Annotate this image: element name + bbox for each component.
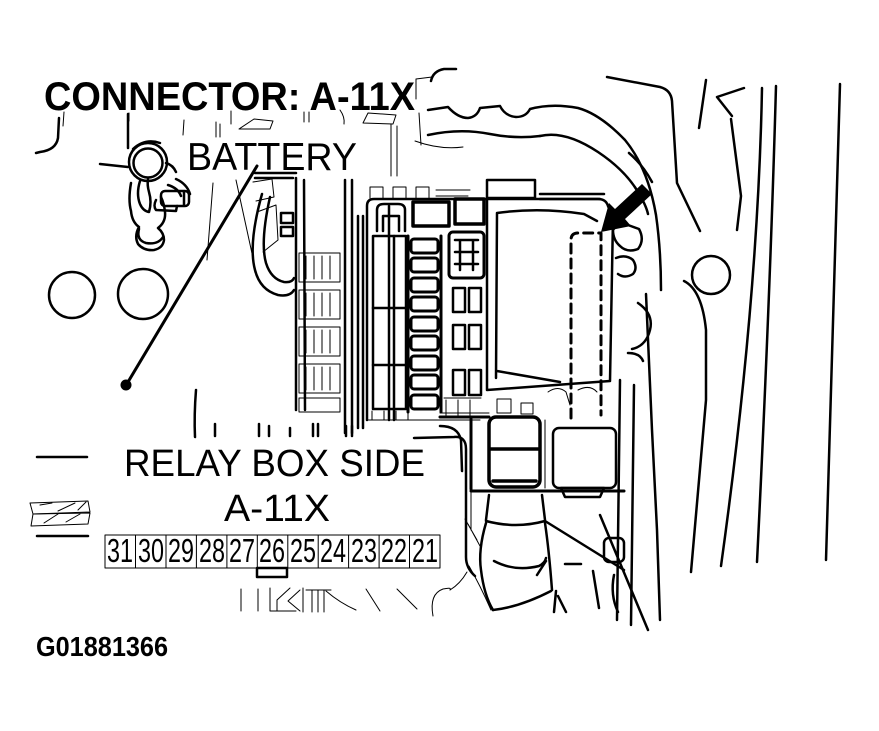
- svg-text:22: 22: [381, 532, 407, 569]
- svg-text:26: 26: [259, 532, 285, 569]
- svg-text:28: 28: [199, 532, 225, 569]
- svg-text:G01881366: G01881366: [36, 631, 168, 662]
- svg-text:27: 27: [229, 532, 255, 569]
- svg-text:30: 30: [138, 532, 164, 569]
- svg-text:21: 21: [412, 532, 438, 569]
- svg-text:25: 25: [290, 532, 316, 569]
- svg-text:CONNECTOR: A-11X: CONNECTOR: A-11X: [44, 75, 415, 119]
- svg-text:24: 24: [320, 532, 346, 569]
- svg-text:31: 31: [107, 532, 133, 569]
- svg-text:29: 29: [168, 532, 194, 569]
- svg-text:RELAY BOX SIDE: RELAY BOX SIDE: [124, 443, 425, 485]
- svg-text:A-11X: A-11X: [224, 488, 330, 530]
- svg-text:23: 23: [351, 532, 377, 569]
